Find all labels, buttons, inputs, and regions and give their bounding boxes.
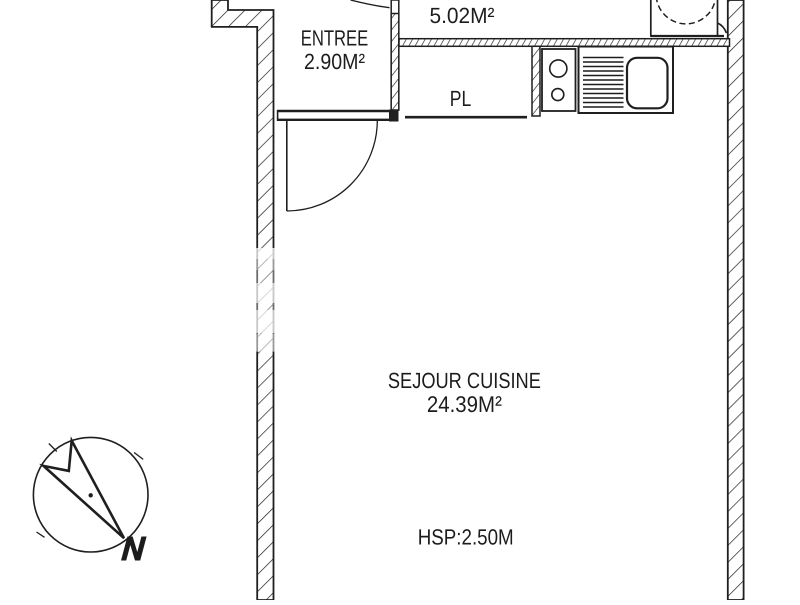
svg-text:ENTREE: ENTREE (301, 26, 369, 51)
svg-text:SEJOUR CUISINE: SEJOUR CUISINE (388, 368, 541, 393)
svg-text:5.02M²: 5.02M² (430, 3, 495, 28)
svg-text:24.39M²: 24.39M² (427, 391, 502, 417)
svg-text:2.90M²: 2.90M² (304, 49, 365, 74)
svg-text:HSP:2.50M: HSP:2.50M (418, 525, 514, 550)
svg-text:PL: PL (450, 86, 472, 111)
